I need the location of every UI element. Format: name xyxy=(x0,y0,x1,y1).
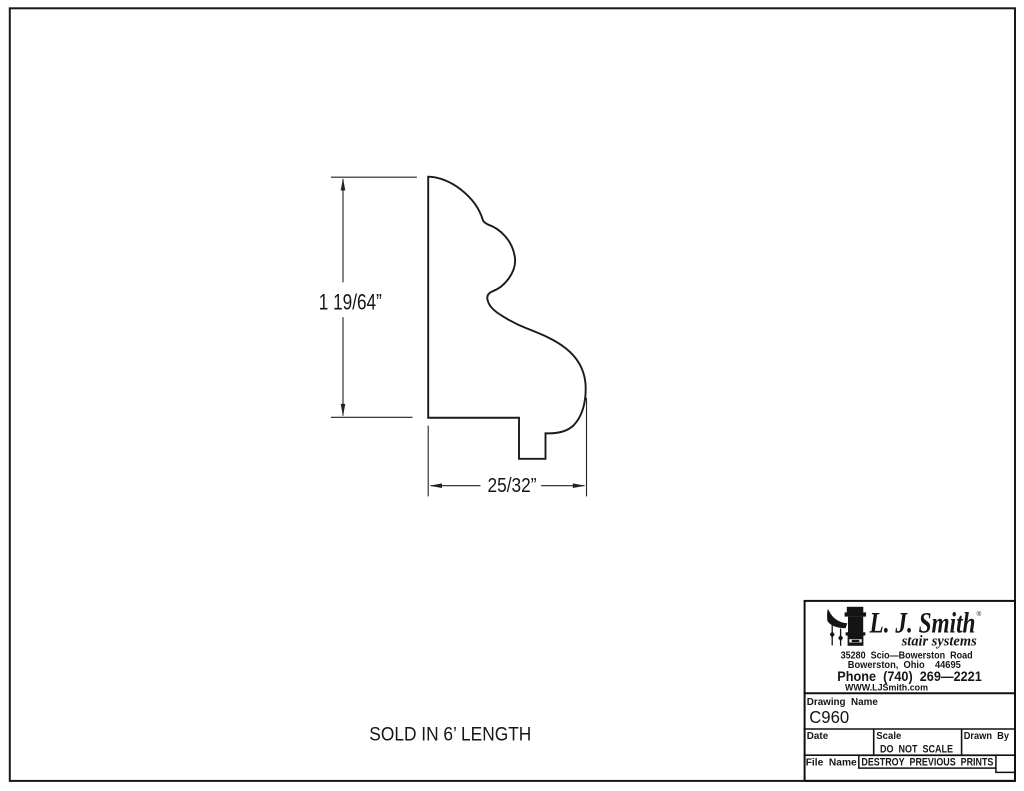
svg-text:WWW.LJSmith.com: WWW.LJSmith.com xyxy=(845,682,928,692)
svg-text:stair systems: stair systems xyxy=(901,634,977,650)
svg-text:1 19/64”: 1 19/64” xyxy=(319,290,382,315)
svg-text:Date: Date xyxy=(807,731,829,742)
svg-text:Drawn By: Drawn By xyxy=(964,731,1010,742)
svg-text:DESTROY PREVIOUS PRINTS: DESTROY PREVIOUS PRINTS xyxy=(861,756,993,768)
svg-text:Scale: Scale xyxy=(876,731,901,742)
svg-text:C960: C960 xyxy=(809,707,849,727)
svg-text:®: ® xyxy=(977,610,982,618)
svg-text:25/32”: 25/32” xyxy=(488,475,537,497)
svg-text:SOLD IN 6’ LENGTH: SOLD IN 6’ LENGTH xyxy=(369,724,531,746)
svg-text:DO NOT SCALE: DO NOT SCALE xyxy=(880,743,953,755)
svg-text:File Name: File Name xyxy=(806,758,857,769)
